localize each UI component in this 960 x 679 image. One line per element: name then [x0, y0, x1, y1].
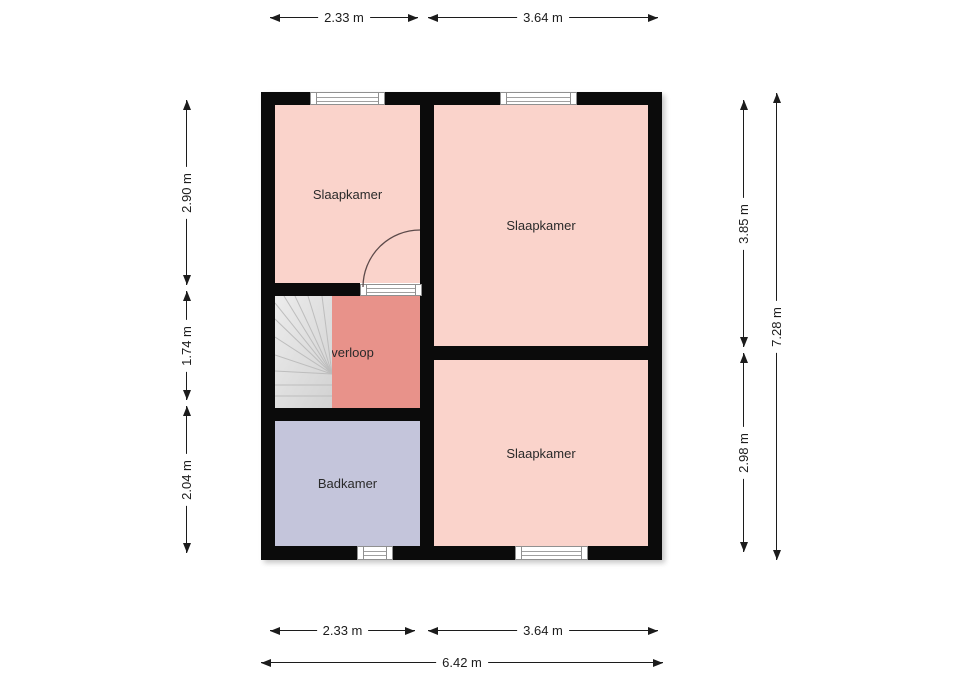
dimension-label: 2.33 m — [318, 9, 370, 25]
dimension-left-upper: 2.90 m — [186, 100, 187, 285]
room-label: Slaapkamer — [506, 218, 575, 233]
dimension-label: 3.64 m — [517, 9, 569, 25]
dimension-label: 2.98 m — [735, 427, 751, 479]
dimension-label: 2.90 m — [178, 167, 194, 219]
stairs — [275, 296, 332, 408]
room-badkamer: Badkamer — [275, 421, 420, 546]
door-frame-cap — [415, 285, 421, 295]
dimension-label: 3.85 m — [735, 198, 751, 250]
door-leaf — [360, 284, 422, 296]
floor-plan-page: 2.33 m 3.64 m 2.90 m 1.74 m 2.04 m 3.85 … — [0, 0, 960, 679]
window-frame-cap — [386, 547, 392, 559]
wall-right — [648, 92, 662, 560]
dimension-left-lower: 2.04 m — [186, 406, 187, 553]
dimension-bottom-right-width: 3.64 m — [428, 630, 658, 631]
room-label: Slaapkamer — [313, 187, 382, 202]
room-label: Badkamer — [318, 476, 377, 491]
dimension-left-middle: 1.74 m — [186, 291, 187, 400]
dimension-top-left-width: 2.33 m — [270, 17, 418, 18]
dimension-label: 2.04 m — [178, 454, 194, 506]
wall-overloop-badkamer — [261, 408, 434, 421]
floor-plan: Slaapkamer Slaapkamer Overloop Badkamer … — [261, 92, 662, 560]
dimension-bottom-left-width: 2.33 m — [270, 630, 415, 631]
dimension-right-total-height: 7.28 m — [776, 93, 777, 560]
dimension-label: 1.74 m — [178, 320, 194, 372]
room-label: Slaapkamer — [506, 446, 575, 461]
wall-center-vertical — [420, 92, 434, 560]
wall-between-right-bedrooms — [420, 346, 662, 360]
wall-left — [261, 92, 275, 560]
window-top-right — [500, 92, 577, 105]
dimension-right-lower: 2.98 m — [743, 353, 744, 552]
window-pane — [317, 93, 378, 104]
window-frame-cap — [581, 547, 587, 559]
window-frame-cap — [378, 93, 384, 104]
room-slaapkamer-bottom-right: Slaapkamer — [434, 360, 648, 546]
window-pane — [522, 547, 581, 559]
window-badkamer — [357, 546, 393, 560]
window-pane — [507, 93, 570, 104]
dimension-label: 3.64 m — [517, 622, 569, 638]
dimension-right-upper: 3.85 m — [743, 100, 744, 347]
room-slaapkamer-top-right: Slaapkamer — [434, 105, 648, 346]
dimension-bottom-total-width: 6.42 m — [261, 662, 663, 663]
wall-bottom — [261, 546, 662, 560]
door-panel — [367, 285, 415, 295]
dimension-label: 2.33 m — [317, 622, 369, 638]
window-top-left — [310, 92, 385, 105]
dimension-label: 6.42 m — [436, 654, 488, 670]
window-bottom-right — [515, 546, 588, 560]
wall-bedroom-overloop — [261, 283, 360, 296]
dimension-label: 7.28 m — [768, 301, 784, 353]
dimension-top-right-width: 3.64 m — [428, 17, 658, 18]
window-frame-cap — [570, 93, 576, 104]
window-pane — [364, 547, 386, 559]
room-slaapkamer-top-left: Slaapkamer — [275, 105, 420, 283]
